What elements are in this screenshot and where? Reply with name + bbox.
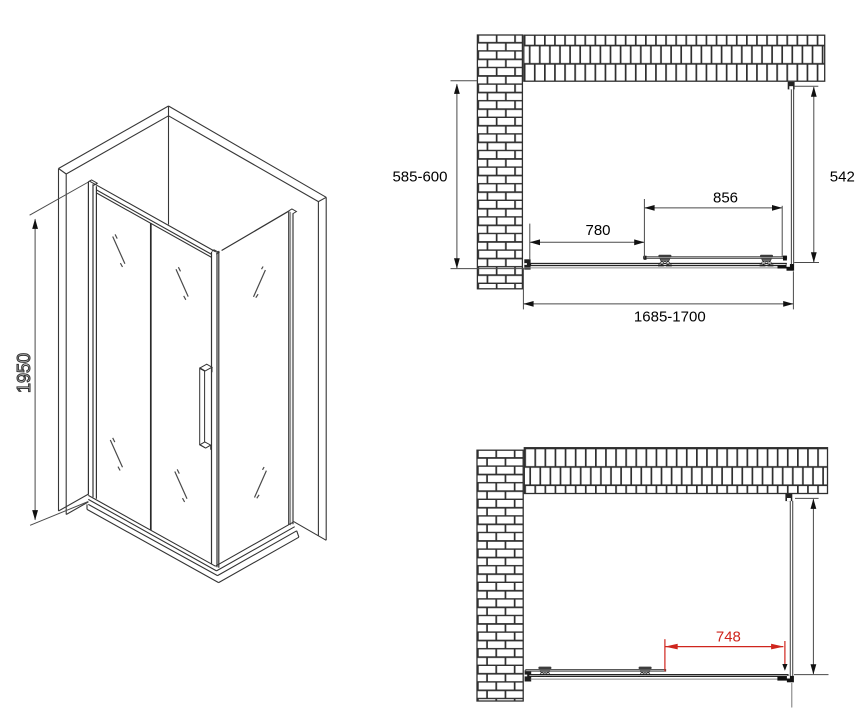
svg-text:856: 856 bbox=[713, 189, 738, 206]
svg-text:585-600: 585-600 bbox=[392, 168, 447, 185]
svg-text:1685-1700: 1685-1700 bbox=[634, 308, 706, 325]
svg-text:542: 542 bbox=[830, 168, 855, 185]
svg-text:748: 748 bbox=[716, 628, 741, 645]
svg-text:780: 780 bbox=[585, 222, 610, 239]
svg-text:1950: 1950 bbox=[14, 353, 34, 393]
